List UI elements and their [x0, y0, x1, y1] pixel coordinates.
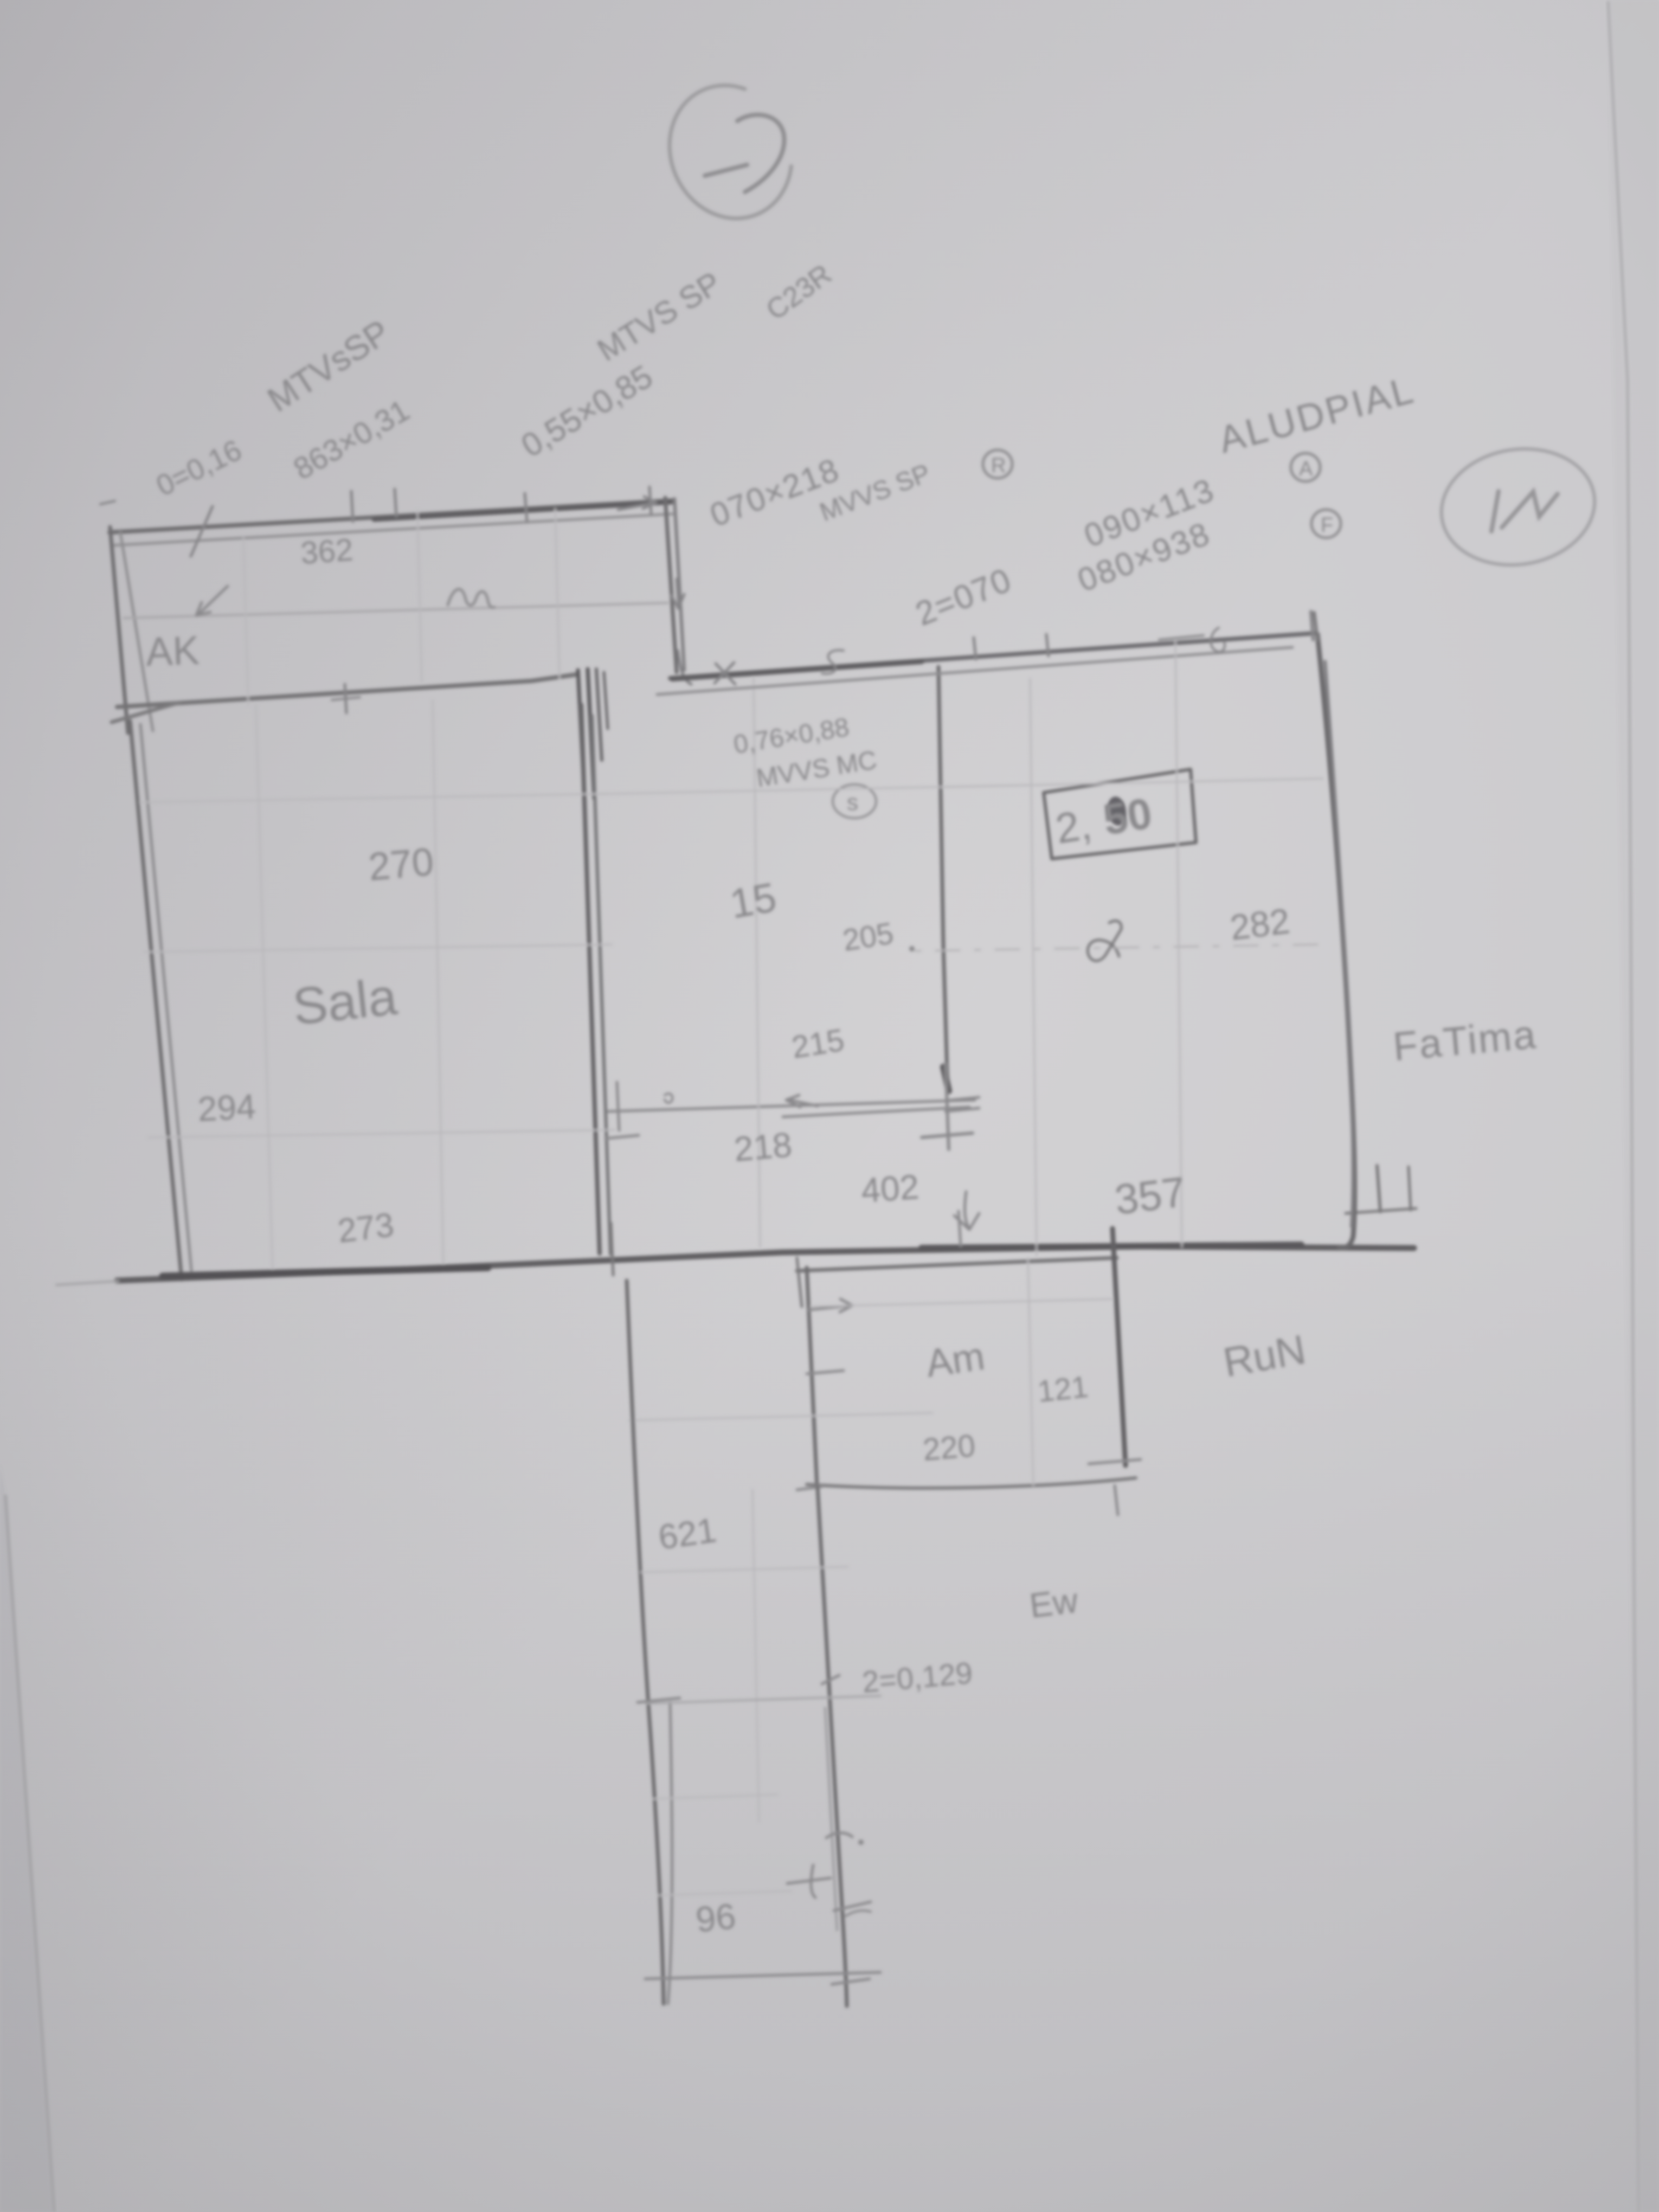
svg-text:R: R — [991, 454, 1006, 477]
svg-text:2,: 2, — [1052, 800, 1095, 853]
svg-text:218: 218 — [732, 1125, 794, 1169]
svg-text:Am: Am — [923, 1335, 987, 1386]
svg-text:Ew: Ew — [1027, 1581, 1081, 1625]
svg-text:402: 402 — [860, 1167, 921, 1210]
svg-text:F: F — [1321, 514, 1333, 537]
svg-text:282: 282 — [1228, 901, 1292, 948]
svg-text:621: 621 — [656, 1510, 719, 1557]
svg-text:362: 362 — [299, 532, 354, 571]
svg-text:96: 96 — [694, 1896, 738, 1940]
svg-text:AK: AK — [145, 628, 201, 674]
svg-text:15: 15 — [726, 874, 780, 927]
svg-text:121: 121 — [1036, 1369, 1090, 1409]
svg-text:50: 50 — [1100, 789, 1155, 844]
svg-text:s: s — [847, 789, 858, 815]
svg-text:294: 294 — [197, 1086, 256, 1128]
svg-text:357: 357 — [1112, 1168, 1188, 1224]
svg-text:Sala: Sala — [290, 967, 400, 1036]
svg-text:270: 270 — [366, 840, 435, 889]
svg-text:273: 273 — [336, 1206, 396, 1250]
svg-text:220: 220 — [921, 1428, 976, 1468]
svg-text:A: A — [1299, 458, 1313, 480]
